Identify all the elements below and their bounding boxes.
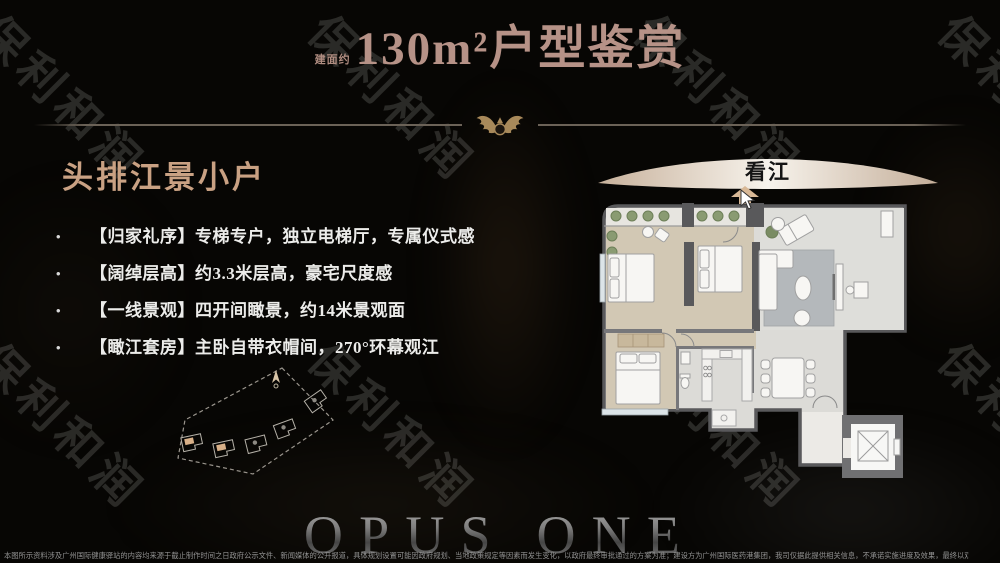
- bullet-dot-icon: •: [48, 263, 90, 284]
- private-elevator-hall: [802, 412, 843, 463]
- elevator-shaft: [842, 415, 903, 478]
- feature-text: 【一线景观】四开间瞰景，约14米景观面: [90, 300, 406, 321]
- view-direction-banner: 看江: [594, 146, 942, 206]
- bullet-dot-icon: •: [48, 337, 90, 358]
- slide: 保利和润 保利和润 保利和润 保利和润 保利和润 保利和润 保利和润 保利和润 …: [0, 0, 1000, 563]
- building-footprint-highlighted: [181, 434, 203, 452]
- dining-set: [761, 358, 815, 398]
- bullet-dot-icon: •: [48, 226, 90, 247]
- view-direction-label: 看江: [745, 160, 791, 184]
- bay-window: [602, 409, 668, 415]
- wardrobe: [618, 334, 664, 347]
- building-footprint: [304, 390, 328, 413]
- bullet-dot-icon: •: [48, 300, 90, 321]
- feature-text: 【归家礼序】专梯专户，独立电梯厅，专属仪式感: [90, 226, 475, 247]
- feature-text: 【阔绰层高】约3.3米层高，豪宅尺度感: [90, 263, 393, 284]
- tv-console: [836, 264, 843, 310]
- tv-screen: [833, 274, 836, 300]
- floor-plan: [596, 198, 910, 484]
- phoenix-wings-icon: [474, 110, 526, 140]
- divider-line: [34, 124, 462, 126]
- building-footprint: [245, 435, 268, 453]
- site-boundary: [178, 368, 333, 474]
- divider-line: [538, 124, 966, 126]
- list-item: • 【归家礼序】专梯专户，独立电梯厅，专属仪式感: [48, 226, 528, 247]
- coffee-table: [795, 276, 811, 300]
- cabinet: [881, 211, 893, 237]
- list-item: • 【一线景观】四开间瞰景，约14米景观面: [48, 300, 528, 321]
- disclaimer-text: 本图所示资料涉及广州国际健康驿站的内容均来源于截止制作时间之日政府公示文件、新闻…: [4, 550, 968, 561]
- page-title: 130m²户型鉴赏: [356, 24, 686, 76]
- building-footprint: [273, 419, 297, 439]
- window: [600, 254, 605, 302]
- building-footprint-highlighted: [213, 440, 235, 458]
- north-arrow-icon: [272, 370, 280, 388]
- master-bedroom: [616, 334, 664, 404]
- header-divider: [34, 110, 966, 140]
- list-item: • 【阔绰层高】约3.3米层高，豪宅尺度感: [48, 263, 528, 284]
- mouse-cursor-icon: [740, 189, 756, 211]
- header: 建面约 130m²户型鉴赏: [0, 24, 1000, 76]
- section-heading: 头排江景小户: [62, 152, 266, 197]
- armchair: [794, 310, 810, 326]
- bedroom-2-bed: [698, 246, 742, 292]
- site-plan: [150, 352, 350, 502]
- area-prefix-label: 建面约: [315, 51, 351, 76]
